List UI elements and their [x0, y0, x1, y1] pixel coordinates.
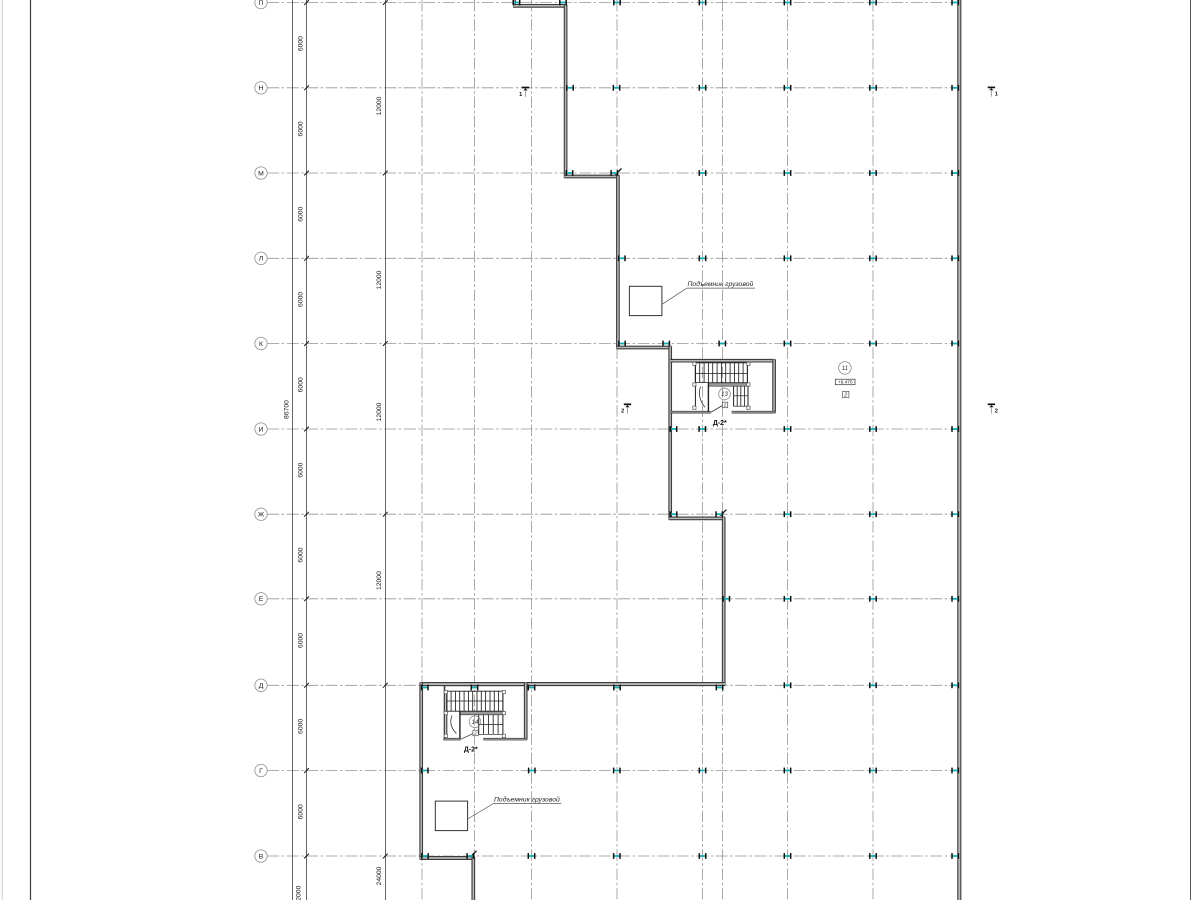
- svg-text:6000: 6000: [297, 206, 304, 221]
- svg-text:6000: 6000: [297, 547, 304, 562]
- svg-text:86700: 86700: [283, 400, 290, 419]
- svg-text:2000: 2000: [295, 885, 302, 900]
- svg-text:6000: 6000: [297, 462, 304, 477]
- svg-text:+9.470: +9.470: [838, 380, 853, 386]
- svg-text:6000: 6000: [297, 719, 304, 734]
- svg-text:Ж: Ж: [258, 512, 265, 519]
- svg-text:1: 1: [519, 92, 522, 98]
- svg-text:11: 11: [842, 366, 848, 372]
- svg-text:Подъемник грузовой: Подъемник грузовой: [688, 280, 754, 288]
- svg-text:6000: 6000: [297, 804, 304, 819]
- svg-text:6000: 6000: [297, 292, 304, 307]
- svg-text:М: М: [258, 170, 264, 177]
- svg-text:Д-2*: Д-2*: [464, 747, 478, 754]
- svg-text:6000: 6000: [297, 377, 304, 392]
- svg-text:2: 2: [473, 731, 477, 737]
- svg-text:И: И: [259, 426, 264, 433]
- svg-text:2: 2: [621, 409, 624, 415]
- svg-text:Л: Л: [259, 256, 263, 263]
- svg-text:П: П: [259, 0, 264, 7]
- svg-text:Д-2*: Д-2*: [713, 420, 727, 427]
- svg-text:14: 14: [472, 720, 479, 726]
- svg-text:Г: Г: [259, 768, 263, 775]
- svg-text:6000: 6000: [297, 36, 304, 51]
- svg-text:12000: 12000: [376, 571, 383, 590]
- svg-text:Е: Е: [259, 596, 264, 603]
- svg-text:Подъемник грузовой: Подъемник грузовой: [494, 796, 560, 804]
- svg-text:6000: 6000: [297, 121, 304, 136]
- svg-text:Н: Н: [259, 85, 264, 92]
- svg-text:24000: 24000: [376, 866, 383, 885]
- svg-text:1: 1: [995, 92, 998, 98]
- svg-text:Д: Д: [259, 683, 264, 690]
- svg-text:2: 2: [723, 403, 727, 409]
- svg-text:12000: 12000: [376, 96, 383, 115]
- svg-text:В: В: [259, 853, 264, 860]
- svg-text:2: 2: [995, 409, 998, 415]
- svg-text:2: 2: [843, 392, 847, 398]
- svg-text:К: К: [259, 341, 263, 348]
- svg-text:13: 13: [721, 392, 728, 398]
- svg-text:6000: 6000: [297, 633, 304, 648]
- svg-text:12000: 12000: [376, 270, 383, 289]
- svg-text:12000: 12000: [376, 402, 383, 421]
